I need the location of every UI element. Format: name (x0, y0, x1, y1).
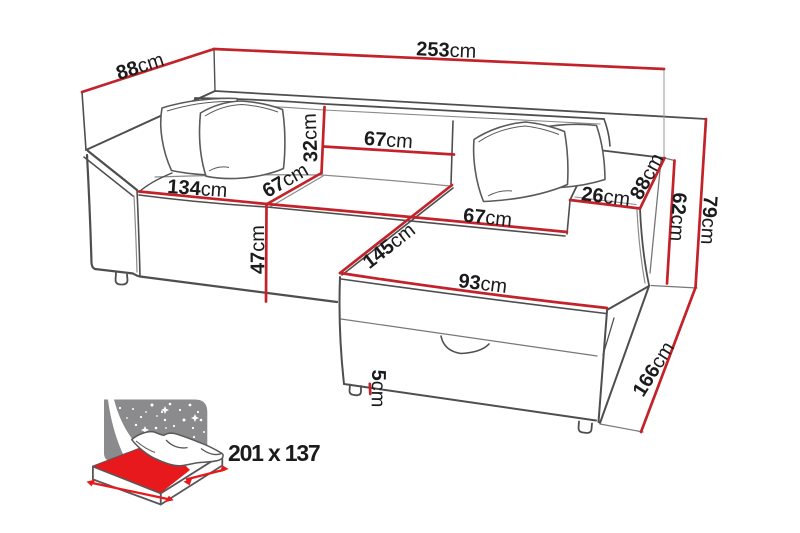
svg-text:253cm: 253cm (416, 38, 477, 63)
svg-text:67cm: 67cm (363, 128, 413, 153)
svg-text:134cm: 134cm (167, 176, 228, 202)
svg-text:47cm: 47cm (247, 225, 269, 274)
svg-text:62cm: 62cm (665, 192, 690, 242)
svg-text:5cm: 5cm (367, 369, 390, 407)
svg-text:79cm: 79cm (696, 195, 721, 245)
svg-text:32cm: 32cm (299, 113, 323, 163)
svg-text:201 x 137: 201 x 137 (228, 440, 320, 466)
